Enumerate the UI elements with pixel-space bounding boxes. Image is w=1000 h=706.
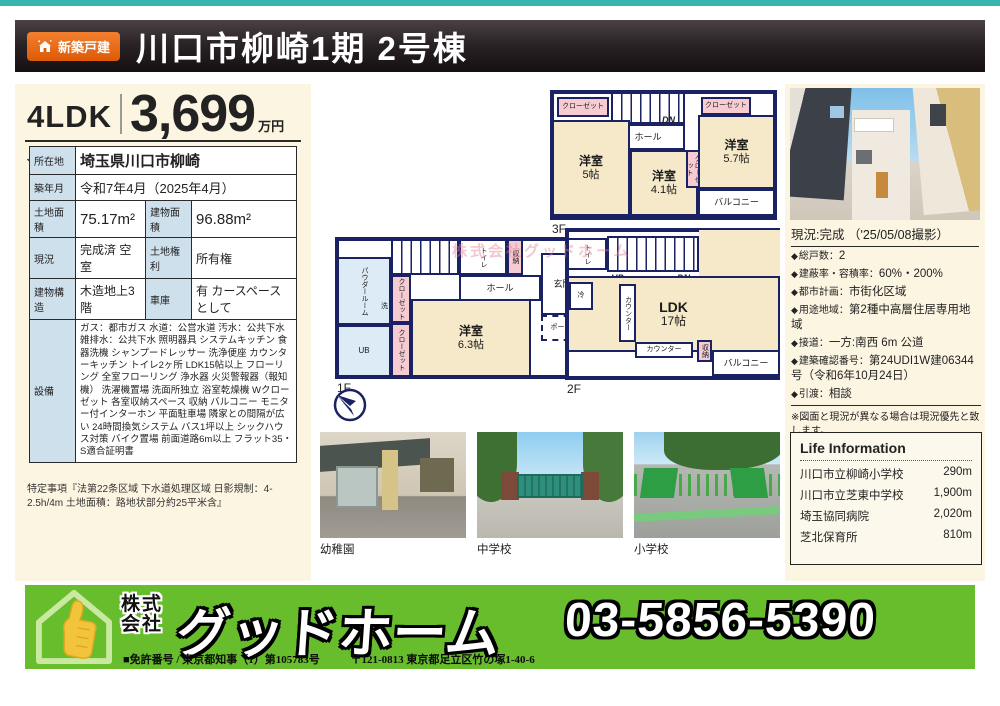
company-prefix: 株式会社 — [121, 595, 173, 635]
top-accent-bar — [0, 0, 1000, 6]
note-item: 建築確認番号第24UDI1W建06344号（令和6年10月24日） — [791, 354, 981, 384]
bedroom-5-7: 洋室5.7帖 — [698, 115, 775, 189]
photo-gate — [730, 468, 768, 498]
closet: クローゼット — [701, 97, 751, 115]
photo-door — [876, 172, 888, 198]
price-divider — [120, 94, 122, 134]
hall: ホール — [459, 275, 541, 301]
row-value: 完成済 空室 — [76, 238, 146, 279]
photo-gate-post — [581, 472, 599, 500]
photo-window — [830, 106, 844, 118]
closet: クローゼット — [391, 275, 411, 323]
table-row: 現況 完成済 空室 土地権利 所有権 — [30, 238, 297, 279]
row-label: 土地権利 — [146, 238, 192, 279]
photo-elementary — [634, 432, 780, 538]
row-value: 木造地上3階 — [76, 279, 146, 320]
life-info-row: 川口市立柳崎小学校290m — [800, 466, 972, 482]
toilet: トイレ — [459, 239, 507, 275]
exterior-photo — [790, 88, 980, 220]
bedroom-6-3: 洋室6.3帖 — [411, 299, 531, 377]
footer-banner: 株式会社 グッドホーム 03-5856-5390 ■免許番号 / 東京都知事（1… — [25, 585, 975, 669]
photo-building-right — [912, 88, 980, 215]
bedroom-5: 洋室5帖 — [552, 120, 630, 216]
header: 新築戸建 川口市柳崎1期 2号棟 — [15, 20, 985, 72]
life-info-row: 埼玉協同病院2,020m — [800, 508, 972, 524]
floor-label: 3F — [552, 222, 566, 236]
photo-tree — [664, 432, 780, 470]
left-panel: 4LDK 3,699 万円 JR武蔵野線 「東浦和」駅 徒歩15分 (1,200… — [15, 84, 311, 581]
stairs — [607, 236, 699, 272]
note-item: 建蔽率・容積率60%・200% — [791, 267, 981, 282]
life-info-row: 芝北保育所810m — [800, 529, 972, 545]
toilet: トイレ — [567, 238, 607, 270]
company-logo-icon — [35, 589, 113, 665]
photo-window — [930, 104, 946, 126]
photo-kindergarten — [320, 432, 466, 538]
unit-bath: UB — [337, 325, 391, 377]
photo-label: 小学校 — [634, 541, 669, 557]
note-item: 引渡相談 — [791, 387, 981, 407]
counter: カウンター — [619, 284, 636, 342]
photo-window — [856, 150, 872, 164]
row-label: 建物面積 — [146, 201, 192, 238]
note-item: 都市計画市街化区域 — [791, 285, 981, 300]
details-table: 所在地 埼玉県川口市柳崎 築年月 令和7年4月（2025年4月） 土地面積 75… — [29, 146, 297, 463]
photo-label: 幼稚園 — [320, 541, 355, 557]
table-row: 築年月 令和7年4月（2025年4月） — [30, 175, 297, 201]
photo-entrance — [336, 466, 378, 508]
photo-panel — [420, 458, 454, 492]
floorplan-3f: クローゼット ホール DN クローゼット 洋室5帖 洋室4.1帖 クローゼット … — [550, 90, 777, 220]
row-label: 土地面積 — [30, 201, 76, 238]
row-value: 75.17m² — [76, 201, 146, 238]
photo-building-left — [790, 88, 852, 200]
closet: クローゼット — [391, 323, 411, 377]
row-label: 築年月 — [30, 175, 76, 201]
layout-type: 4LDK — [27, 101, 112, 136]
floorplan-1f: パウダールーム 洗 UB UP トイレ 収納 ホール 玄関 クローゼット クロー… — [335, 237, 582, 379]
photo-gate — [640, 468, 678, 498]
note-item: 用途地域第2種中高層住居専用地域 — [791, 303, 981, 333]
closet: クローゼット — [557, 97, 609, 117]
photo-junior-high — [477, 432, 623, 538]
floorplan-2f: トイレ UP DN LDK17帖 冷 カウンター カウンター 収納 バルコニー … — [565, 228, 780, 380]
house-icon — [37, 39, 53, 54]
phone-number: 03-5856-5390 — [564, 593, 878, 648]
page-title: 川口市柳崎1期 2号棟 — [136, 22, 468, 70]
property-notes: 総戸数2 建蔽率・容積率60%・200% 都市計画市街化区域 用途地域第2種中高… — [791, 246, 981, 456]
row-label: 車庫 — [146, 279, 192, 320]
balcony: バルコニー — [712, 350, 780, 376]
row-label: 建物構造 — [30, 279, 76, 320]
powder-room: パウダールーム — [337, 257, 391, 325]
row-label: 設備 — [30, 320, 76, 463]
washer-label: 洗 — [381, 301, 388, 311]
ldk: LDK17帖 — [567, 276, 780, 352]
license-number: ■免許番号 / 東京都知事（1）第105783号 — [123, 654, 320, 666]
equipment-list: ガス：都市ガス 水道：公営水道 汚水：公共下水 雑排水：公共下水 照明器具 シス… — [76, 320, 297, 463]
row-label: 現況 — [30, 238, 76, 279]
note-item: 接道一方:南西 6m 公道 — [791, 336, 981, 351]
property-type-badge: 新築戸建 — [27, 32, 120, 61]
table-row: 設備 ガス：都市ガス 水道：公営水道 汚水：公共下水 雑排水：公共下水 照明器具… — [30, 320, 297, 463]
photo-pillar — [382, 450, 398, 510]
life-information-box: Life Information 川口市立柳崎小学校290m 川口市立芝東中学校… — [790, 432, 982, 565]
floor-label: 2F — [567, 382, 581, 396]
badge-label: 新築戸建 — [58, 37, 110, 56]
price-row: 4LDK 3,699 万円 — [25, 90, 301, 142]
ldk-upper — [699, 230, 780, 280]
life-info-row: 川口市立芝東中学校1,900m — [800, 487, 972, 503]
note-item: 総戸数2 — [791, 249, 981, 264]
row-label: 所在地 — [30, 147, 76, 175]
row-value: 有 カースペースとして — [192, 279, 297, 320]
balcony: バルコニー — [698, 189, 775, 216]
row-value: 埼玉県川口市柳崎 — [76, 147, 297, 175]
photo-label: 中学校 — [477, 541, 512, 557]
row-value: 96.88m² — [192, 201, 297, 238]
refrigerator: 冷 — [569, 282, 593, 310]
life-information-title: Life Information — [800, 440, 972, 461]
price-amount: 3,699 — [130, 92, 255, 136]
license-line: ■免許番号 / 東京都知事（1）第105783号 〒121-0813 東京都足立… — [123, 651, 535, 667]
compass-icon — [330, 385, 370, 425]
dn-label: DN — [662, 115, 675, 125]
table-row: 所在地 埼玉県川口市柳崎 — [30, 147, 297, 175]
price-unit: 万円 — [258, 116, 284, 135]
counter: カウンター — [635, 342, 693, 358]
company-address: 〒121-0813 東京都足立区竹の塚1-40-6 — [350, 654, 534, 666]
photo-gate — [517, 474, 583, 498]
photo-balcony — [854, 118, 894, 132]
photo-road-stripe — [634, 506, 780, 522]
flyer-page: 新築戸建 川口市柳崎1期 2号棟 4LDK 3,699 万円 JR武蔵野線 「東… — [0, 0, 1000, 706]
row-value: 所有権 — [192, 238, 297, 279]
row-value: 令和7年4月（2025年4月） — [76, 175, 297, 201]
storage: 収納 — [507, 239, 523, 275]
stairs — [391, 239, 459, 275]
special-note: 特定事項『法第22条区域 下水道処理区域 日影規制：4-2.5h/4m 土地面積… — [27, 483, 305, 510]
storage: 収納 — [697, 340, 712, 362]
photo-caption: 現況:完成 （'25/05/08撮影） — [791, 224, 979, 247]
table-row: 土地面積 75.17m² 建物面積 96.88m² — [30, 201, 297, 238]
table-row: 建物構造 木造地上3階 車庫 有 カースペースとして — [30, 279, 297, 320]
